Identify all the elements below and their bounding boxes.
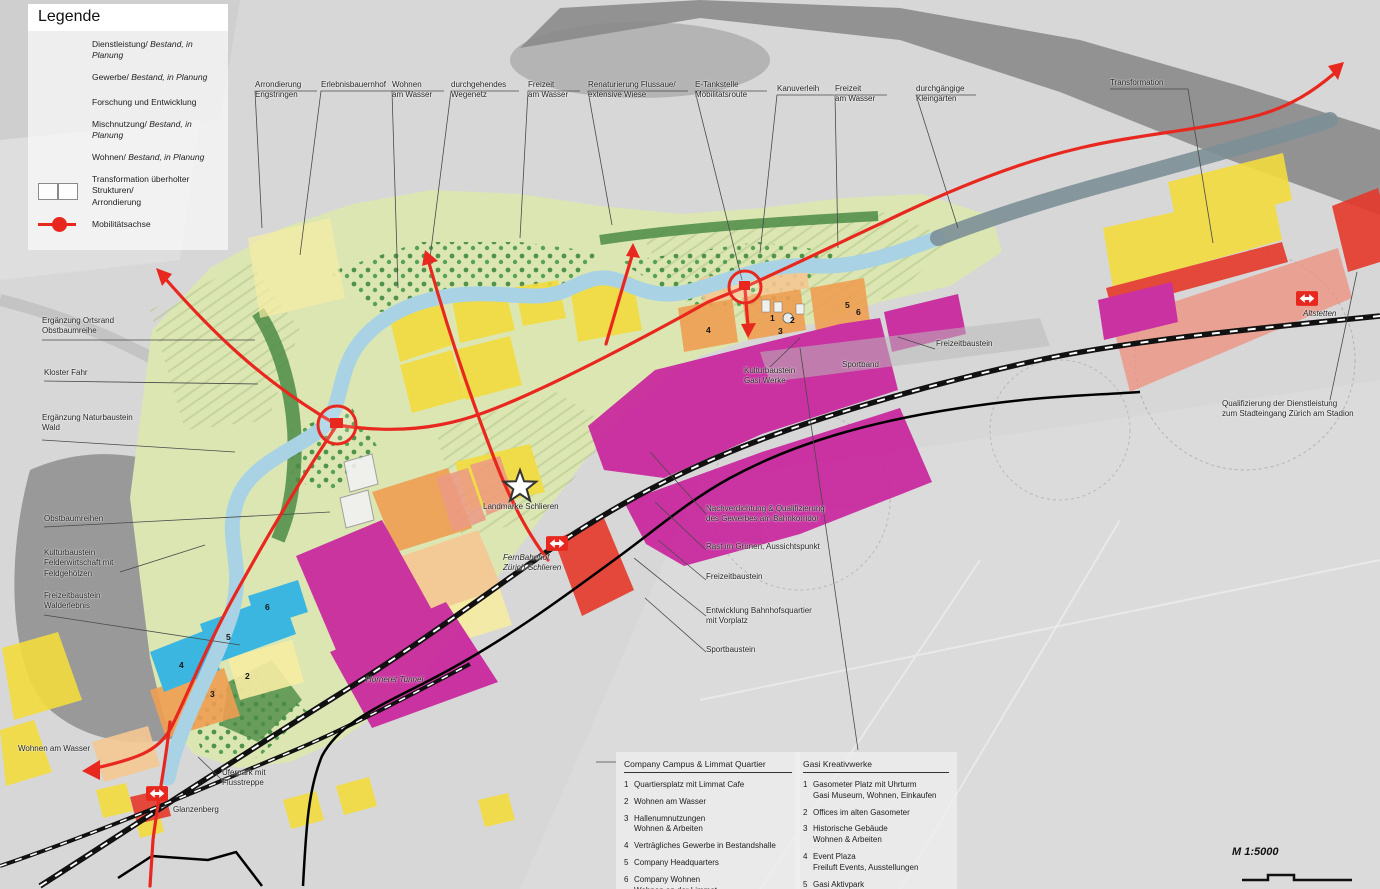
annotation-label: Wohnen am Wasser [392,80,432,101]
company-campus-title: Company Campus & Limmat Quartier [624,759,792,773]
annotation-label: Horneret Tunnel [366,675,423,685]
list-item: 1Quartiersplatz mit Limmat Cafe [624,780,792,791]
annotation-label: Ergänzung Ortsrand Obstbaumreihe [42,316,114,337]
svg-text:6: 6 [856,307,861,317]
wohnen-swatch [38,149,82,166]
annotation-label: Kanuverleih [777,84,819,94]
annotation-label: Obstbaumreihen [44,514,103,524]
annotation-label: E-Tankstelle Mobilitätsroute [695,80,747,101]
svg-text:2: 2 [790,315,795,325]
forschung-swatch [38,94,82,111]
annotation-label: Sportbaustein [706,645,755,655]
annotation-label: Freizeit am Wasser [528,80,568,101]
sbb-station-icon [1296,291,1318,306]
annotation-label: Sportband [842,360,879,370]
svg-text:4: 4 [706,325,711,335]
annotation-label: Qualifizierung der Dienstleistung zum St… [1222,399,1354,420]
annotation-label: Kulturbaustein Felderwirtschaft mit Feld… [44,548,113,579]
gasi-kreativwerke-box: Gasi Kreativwerke 1Gasometer Platz mit U… [795,752,957,889]
station-label: FernBahnhof Zürich-Schlieren [503,553,561,574]
list-item: 3Hallenumnutzungen Wohnen & Arbeiten [624,814,792,836]
legend-item-gewerbe: Gewerbe/ Bestand, in Planung [38,69,218,87]
annotation-label: Kloster Fahr [44,368,88,378]
annotation-label: Freizeit am Wasser [835,84,875,105]
transformation-swatch [38,183,82,200]
list-item: 3Historische Gebäude Wohnen & Arbeiten [803,824,949,846]
list-item: 4Verträgliches Gewerbe in Bestandshalle [624,841,792,852]
annotation-label: Arrondierung Engstringen [255,80,301,101]
annotation-label: Freizeitbaustein [706,572,762,582]
annotation-label: Freizeitbaustein [936,339,992,349]
legend-item-wohnen: Wohnen/ Bestand, in Planung [38,149,218,167]
list-item: 5Company Headquarters [624,858,792,869]
list-item: 1Gasometer Platz mit Uhrturm Gasi Museum… [803,780,949,802]
annotation-label: Erlebnisbauernhof [321,80,386,90]
company-campus-box: Company Campus & Limmat Quartier 1Quarti… [616,752,800,889]
annotation-label: Freizeitbaustein Walderlebnis [44,591,100,612]
svg-text:6: 6 [265,602,270,612]
masterplan-map: 6 5 4 2 3 4 1 2 3 5 6 Legende Dienstleis… [0,0,1380,889]
svg-text:3: 3 [778,326,783,336]
legend: Legende Dienstleistung/ Bestand, in Plan… [28,4,228,250]
list-item: 5Gasi Aktivpark [803,880,949,889]
list-item: 2Offices im alten Gasometer [803,808,949,819]
gasi-kreativwerke-title: Gasi Kreativwerke [803,759,949,773]
list-item: 2Wohnen am Wasser [624,797,792,808]
legend-item-transformation: Transformation überholter Strukturen/ Ar… [38,174,218,208]
annotation-label: Renaturierung Flussaue/ extensive Wiese [588,80,676,101]
dienstleistung-swatch [38,42,82,59]
station-label: Altstetten [1303,309,1336,319]
annotation-label: Wohnen am Wasser [18,744,90,754]
svg-text:5: 5 [226,632,231,642]
annotation-label: Ergänzung Naturbaustein Wald [42,413,133,434]
station-label: Glanzenberg [173,805,219,815]
svg-text:4: 4 [179,660,184,670]
annotation-label: durchgängige Kleingärten [916,84,964,105]
legend-item-dienstleistung: Dienstleistung/ Bestand, in Planung [38,39,218,62]
svg-text:1: 1 [770,313,775,323]
annotation-label: Uferpark mit Flusstreppe [222,768,266,789]
annotation-label: Transformation [1110,78,1164,88]
annotation-label: Nachverdichtung & Qualifizierung des Gew… [706,504,825,525]
map-scale: M 1:5000 [1232,846,1278,858]
svg-text:2: 2 [245,671,250,681]
list-item: 6Company Wohnen Wohnen an der Limmat [624,875,792,889]
annotation-label: Entwicklung Bahnhofsquartier mit Vorplat… [706,606,812,627]
legend-title: Legende [28,4,228,31]
annotation-label: Rast im Grünen, Aussichtspunkt [706,542,820,552]
sbb-station-icon [546,536,568,551]
mischnutzung-swatch [38,122,82,139]
svg-text:5: 5 [845,300,850,310]
svg-text:3: 3 [210,689,215,699]
sbb-station-icon [146,786,168,801]
list-item: 4Event Plaza Freiluft Events, Ausstellun… [803,852,949,874]
legend-item-mischnutzung: Mischnutzung/ Bestand, in Planung [38,119,218,142]
annotation-label: Kulturbaustein Gasi Werke [744,366,795,387]
legend-item-forschung: Forschung und Entwicklung [38,94,218,112]
legend-item-mobilitaetsachse: Mobilitätsachse [38,215,218,233]
mobilitaetsachse-swatch [38,216,82,233]
gewerbe-swatch [38,69,82,86]
annotation-label: durchgehendes Wegenetz [451,80,506,101]
annotation-label: Landmarke Schlieren [483,502,559,512]
